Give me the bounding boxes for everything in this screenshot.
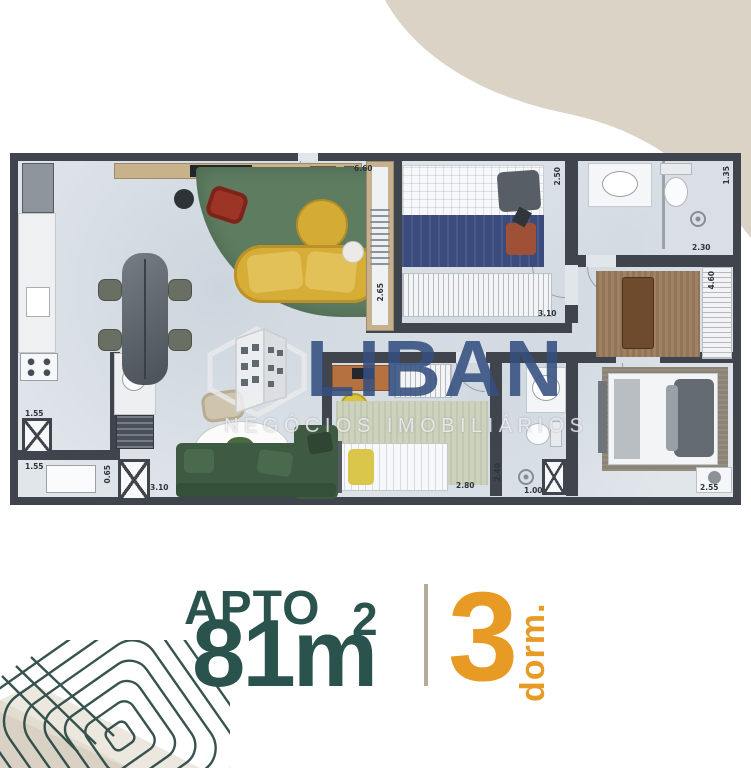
toilet-bowl xyxy=(664,177,688,207)
dining-table-seam xyxy=(144,259,146,379)
area-value: 81m xyxy=(192,606,375,702)
sofa-cushion xyxy=(246,250,304,293)
red-ottoman xyxy=(506,223,536,255)
dining-chair xyxy=(168,279,192,301)
dimension-label: 1.55 xyxy=(25,462,44,471)
dimension-label: 3.10 xyxy=(538,309,557,318)
dimension-label: 0.65 xyxy=(103,465,112,484)
kitchen-counter xyxy=(18,213,56,353)
title-divider xyxy=(424,584,428,686)
dimension-label: 2.30 xyxy=(692,243,711,252)
white-pouf xyxy=(342,241,364,263)
dimension-label: 2.65 xyxy=(376,283,385,302)
shower-drain xyxy=(518,469,534,485)
dimension-label: 2.50 xyxy=(553,167,562,186)
sofa-back-cushions xyxy=(176,483,336,497)
sofa-cushion xyxy=(256,449,293,477)
watermark-tagline: NEGÓCIOS IMOBILIÁRIOS xyxy=(224,415,588,438)
dimension-label: 1.35 xyxy=(722,166,731,185)
wood-dresser xyxy=(622,277,654,349)
dorm-count: 3 xyxy=(448,578,518,695)
blanket xyxy=(614,379,640,459)
service-shaft xyxy=(22,418,52,454)
building-icon xyxy=(202,317,312,423)
door-opening xyxy=(565,265,578,305)
floor-plan: 6.60 2.65 2.50 3.10 1.35 2.30 4.60 2.55 … xyxy=(10,153,741,505)
stove xyxy=(20,353,58,381)
dimension-label: 4.60 xyxy=(707,271,716,290)
service-shaft xyxy=(542,459,566,495)
bathroom-sink xyxy=(602,171,638,197)
dining-chair xyxy=(98,279,122,301)
dimension-label: 2.80 xyxy=(456,481,475,490)
dorm-label: dorm. xyxy=(516,592,556,702)
yellow-pillow xyxy=(348,449,374,485)
dining-chair xyxy=(98,329,122,351)
wall-segment xyxy=(394,153,402,331)
dimension-label: 1.55 xyxy=(25,409,44,418)
watermark-brand: LIBAN xyxy=(306,329,565,409)
area-exponent: 2 xyxy=(352,596,378,642)
appliance-dark xyxy=(116,415,154,449)
bed-bench xyxy=(598,381,607,453)
dimension-label: 2.55 xyxy=(700,483,719,492)
service-shaft xyxy=(118,459,150,501)
window-blinds xyxy=(370,205,390,265)
sofa-cushion xyxy=(184,449,214,473)
dimension-label: 1.00 xyxy=(524,486,543,495)
side-table xyxy=(174,189,194,209)
marketing-image: { "brand_watermark": { "name": "LIBAN", … xyxy=(0,0,751,768)
entry-door-opening xyxy=(298,153,318,161)
washing-machine xyxy=(46,465,96,493)
pillow xyxy=(674,379,714,457)
shower-drain xyxy=(690,211,706,227)
dimension-label: 3.10 xyxy=(150,483,169,492)
dimension-label: 2.40 xyxy=(493,463,502,482)
fridge xyxy=(22,163,54,213)
door-opening xyxy=(586,255,616,267)
dimension-label: 6.60 xyxy=(354,164,373,173)
wardrobe xyxy=(402,273,552,317)
yellow-pouf xyxy=(296,199,348,251)
pillow xyxy=(666,385,678,451)
dining-chair xyxy=(168,329,192,351)
toilet-tank xyxy=(660,163,692,175)
kitchen-sink xyxy=(26,287,50,317)
